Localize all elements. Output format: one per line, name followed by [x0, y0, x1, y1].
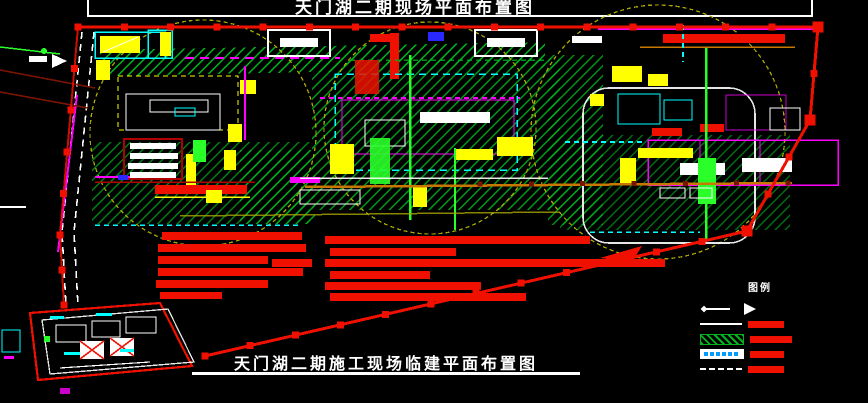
dashed-line-icon — [700, 368, 742, 370]
entrance-road — [0, 47, 95, 108]
material-stack-bars-right — [325, 236, 665, 301]
legend-red-bar — [750, 336, 792, 343]
top-title-text: 天门湖二期现场平面布置图 — [245, 0, 585, 15]
legend-red-bar — [748, 366, 784, 373]
door-symbol — [80, 341, 104, 359]
arrow-triangle-icon — [744, 303, 756, 315]
cyan-text-icon — [704, 352, 740, 356]
green-hatch-areas — [92, 42, 790, 230]
legend-item-solid-line — [700, 318, 868, 330]
material-stack-bars-left — [156, 232, 312, 299]
legend-red-bar — [748, 321, 784, 328]
white-box-icon — [700, 349, 744, 359]
entrance-arrow-icon — [52, 54, 67, 68]
legend-red-bar — [750, 351, 784, 358]
door-symbol — [110, 338, 134, 356]
road-label-blob — [29, 56, 47, 62]
gate-compound — [2, 303, 194, 394]
legend: 图例 — [700, 279, 868, 375]
cad-site-plan-viewport[interactable]: 天门湖二期现场平面布置图 天门湖二期施工现场临建平面布置图 图例 — [0, 0, 868, 403]
green-hatch-icon — [700, 334, 744, 345]
legend-item-label-box — [700, 348, 868, 360]
legend-item-dashed-line — [700, 363, 868, 375]
top-title: 天门湖二期现场平面布置图 — [245, 0, 585, 15]
legend-title: 图例 — [748, 279, 868, 294]
solid-line-icon — [700, 323, 742, 325]
legend-direction-arrow — [700, 303, 868, 315]
legend-item-green-hatch — [700, 333, 868, 345]
drawing-title: 天门湖二期施工现场临建平面布置图 — [192, 350, 580, 375]
arrow-line-icon — [704, 308, 730, 310]
